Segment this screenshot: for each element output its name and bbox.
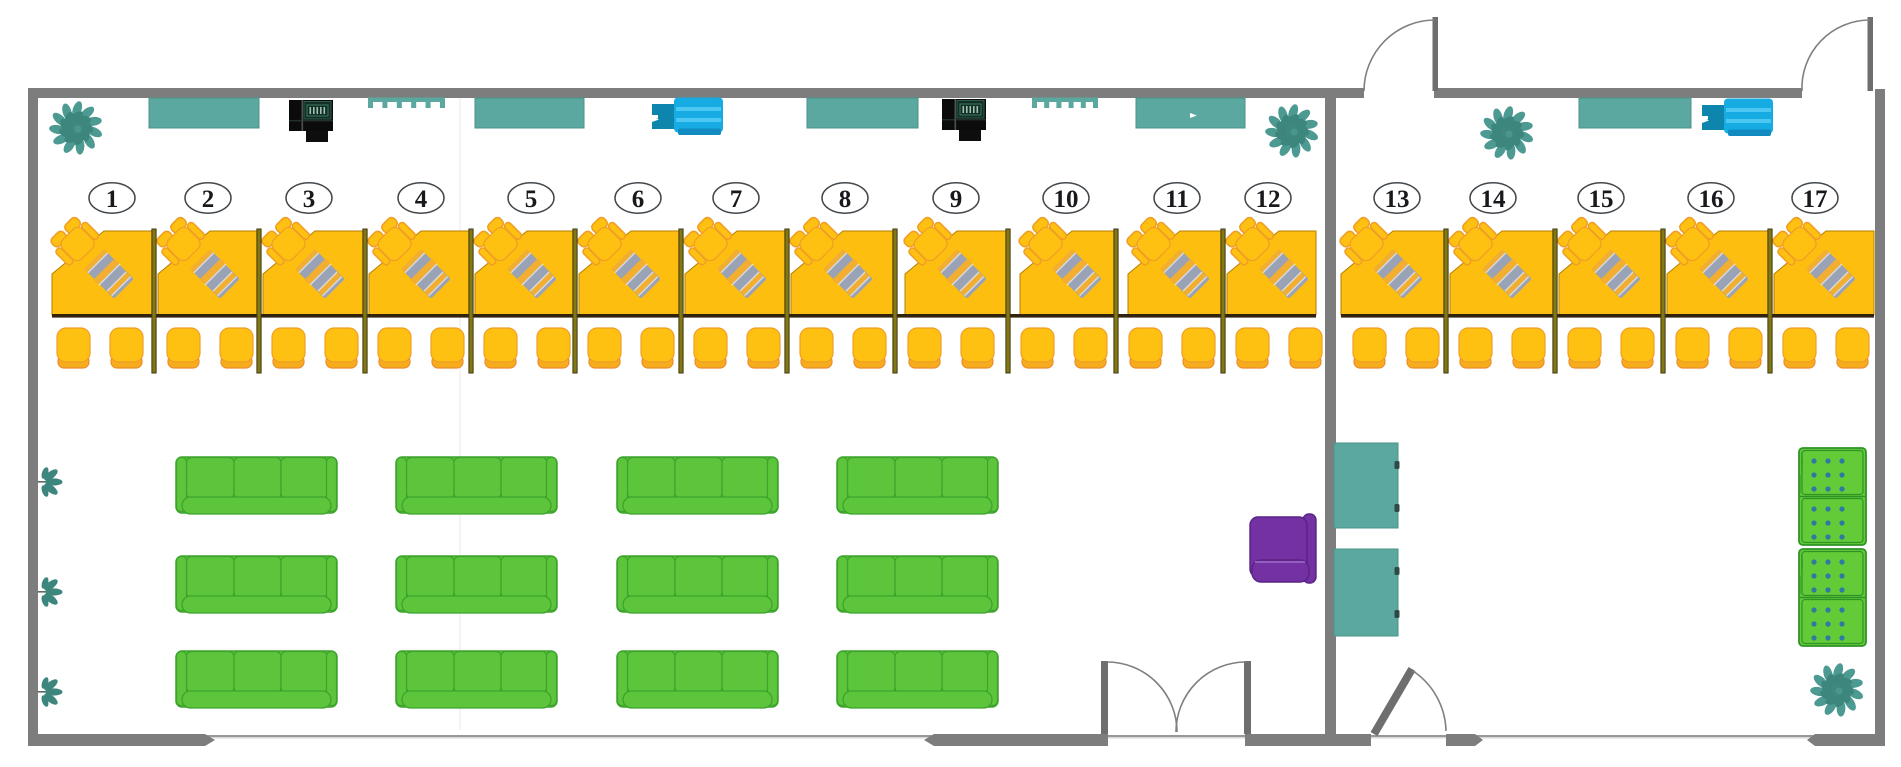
svg-text:4: 4 xyxy=(415,186,428,213)
svg-text:13: 13 xyxy=(1385,186,1410,213)
svg-text:15: 15 xyxy=(1589,186,1614,213)
svg-text:11: 11 xyxy=(1165,186,1189,213)
svg-text:3: 3 xyxy=(303,186,316,213)
svg-text:6: 6 xyxy=(632,186,645,213)
svg-text:2: 2 xyxy=(202,186,215,213)
svg-text:17: 17 xyxy=(1803,186,1828,213)
svg-text:10: 10 xyxy=(1054,186,1079,213)
svg-text:14: 14 xyxy=(1481,186,1507,213)
svg-text:7: 7 xyxy=(730,186,743,213)
svg-text:16: 16 xyxy=(1699,186,1724,213)
svg-text:12: 12 xyxy=(1256,186,1281,213)
svg-text:5: 5 xyxy=(525,186,538,213)
svg-text:8: 8 xyxy=(839,186,852,213)
svg-text:1: 1 xyxy=(106,186,119,213)
svg-text:9: 9 xyxy=(950,186,963,213)
